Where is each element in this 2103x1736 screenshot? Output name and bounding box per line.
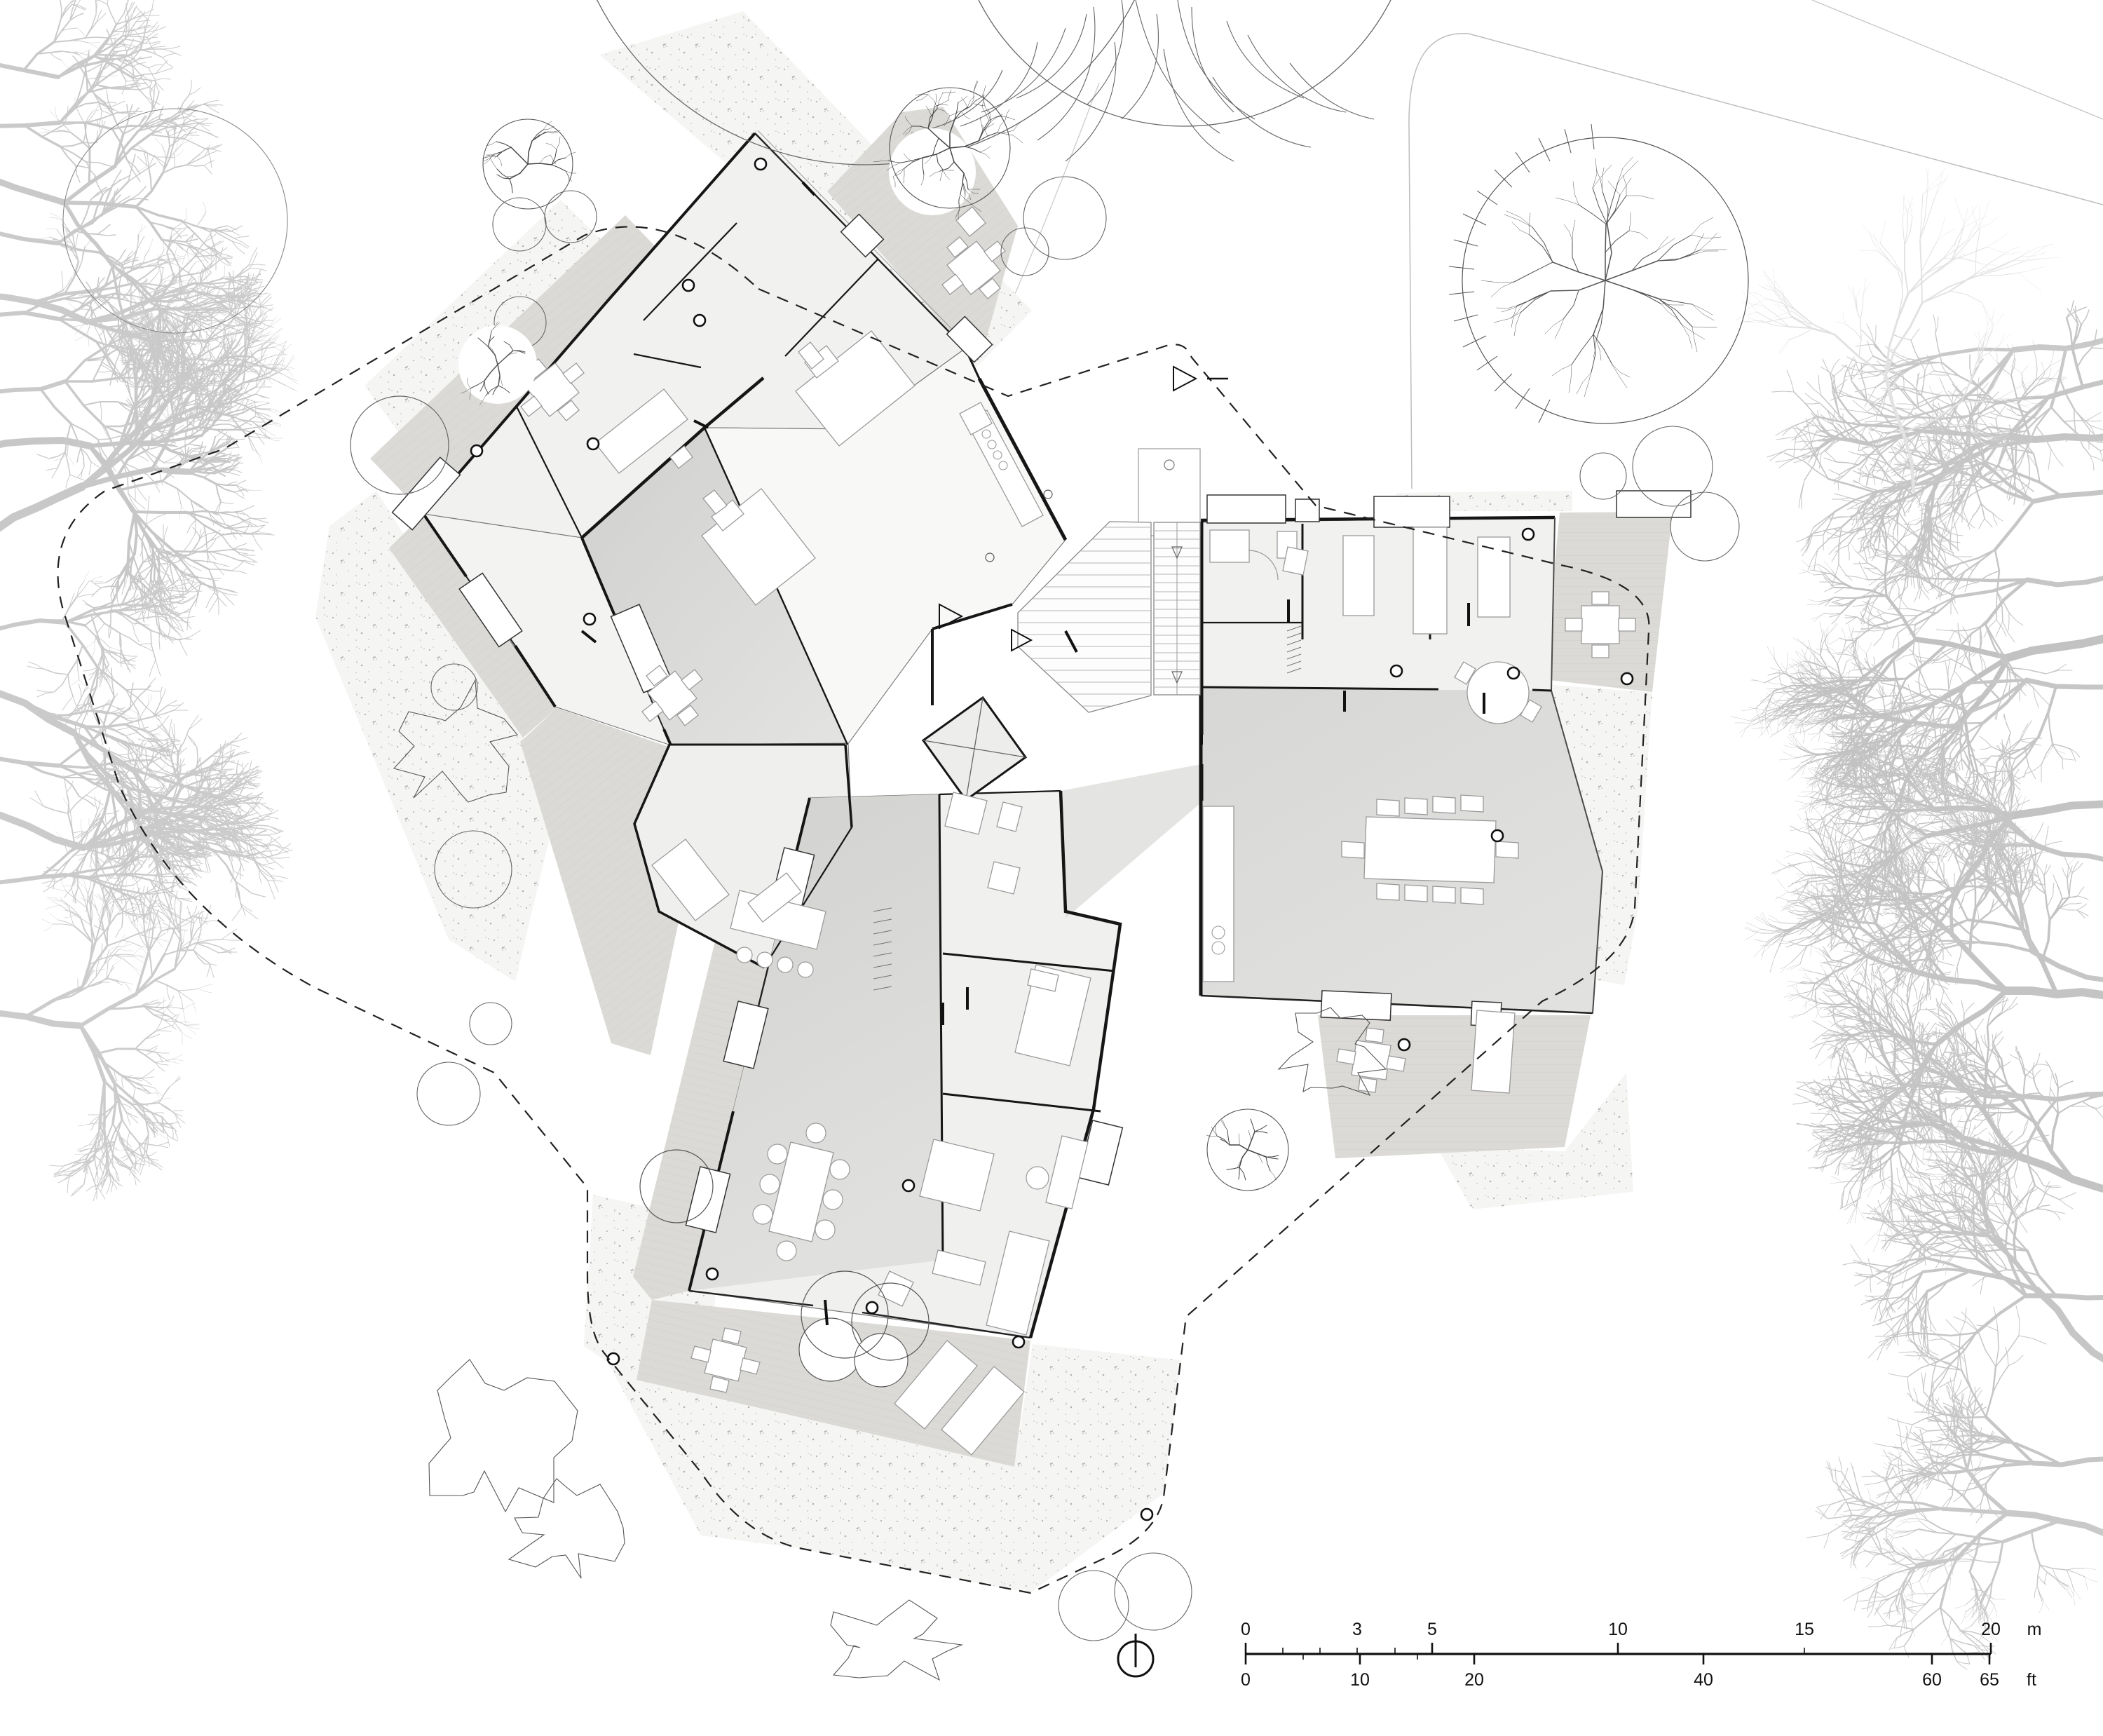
svg-text:40: 40 (1694, 1670, 1713, 1690)
svg-text:0: 0 (1241, 1670, 1251, 1690)
svg-text:3: 3 (1352, 1620, 1362, 1639)
svg-text:10: 10 (1350, 1670, 1370, 1690)
svg-text:60: 60 (1922, 1670, 1942, 1690)
svg-text:5: 5 (1427, 1620, 1437, 1639)
svg-text:20: 20 (1981, 1620, 2001, 1639)
svg-text:20: 20 (1464, 1670, 1484, 1690)
svg-text:15: 15 (1795, 1620, 1814, 1639)
svg-text:10: 10 (1608, 1620, 1628, 1639)
svg-text:ft: ft (2027, 1670, 2036, 1690)
svg-text:m: m (2027, 1620, 2042, 1639)
svg-text:65: 65 (1980, 1670, 1999, 1690)
svg-text:0: 0 (1241, 1620, 1251, 1639)
